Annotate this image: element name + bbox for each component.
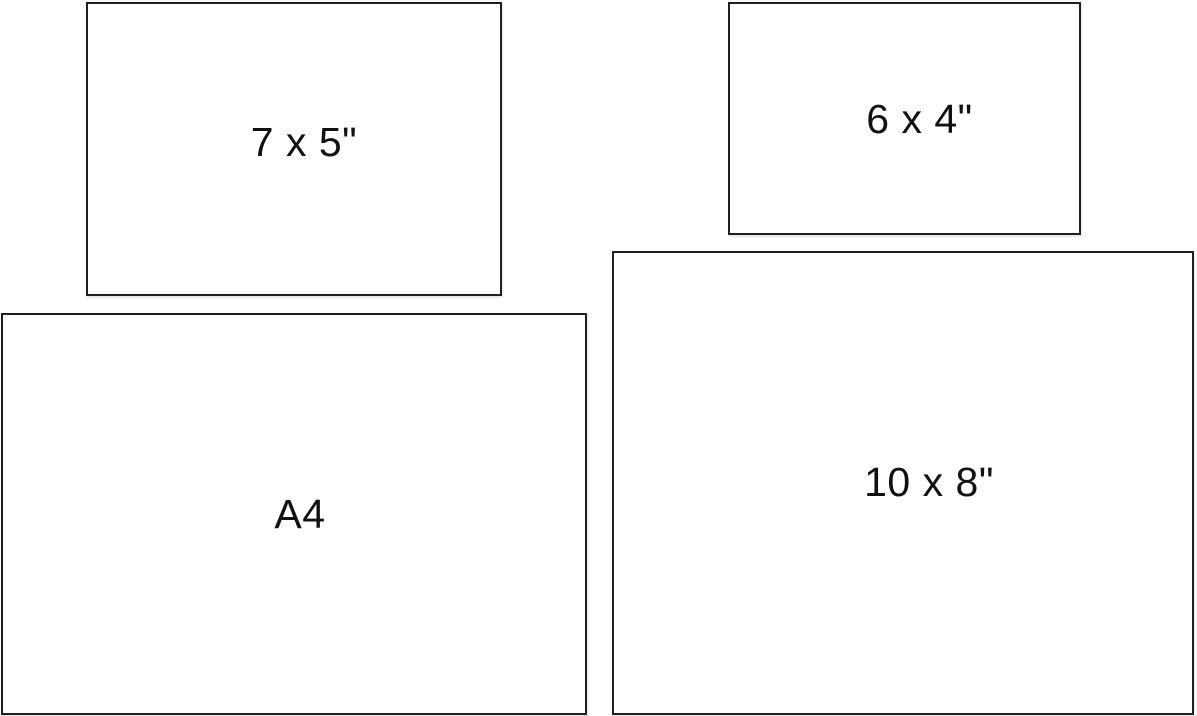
paper-size-label-10x8: 10 x 8" (864, 462, 994, 503)
paper-size-rect-a4: A4 (1, 313, 587, 715)
paper-size-comparison-diagram: 7 x 5" 6 x 4" A4 10 x 8" (0, 0, 1197, 716)
paper-size-rect-6x4: 6 x 4" (728, 2, 1081, 235)
paper-size-label-7x5: 7 x 5" (251, 122, 357, 163)
paper-size-rect-7x5: 7 x 5" (86, 2, 502, 296)
paper-size-label-a4: A4 (274, 494, 325, 535)
paper-size-rect-10x8: 10 x 8" (612, 251, 1194, 715)
paper-size-label-6x4: 6 x 4" (866, 99, 972, 140)
